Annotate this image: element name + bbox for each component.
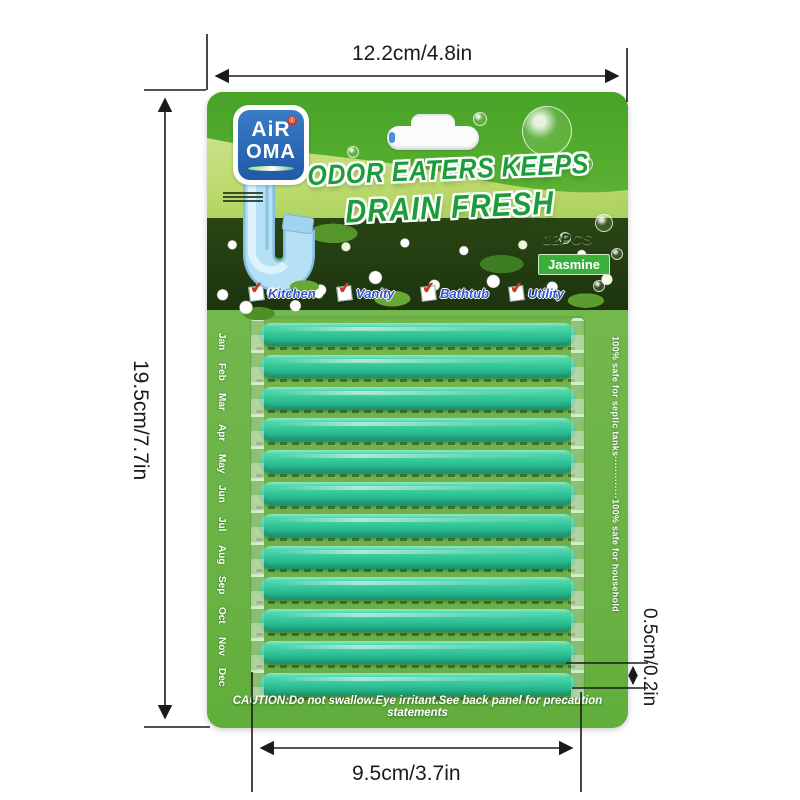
usage-option-label: Utility: [528, 286, 564, 301]
drain-stick: [260, 546, 575, 569]
brand-logo: AiR ® OMA: [233, 105, 309, 185]
usage-option-label: Vanity: [356, 286, 395, 301]
checkbox: ✔: [420, 285, 437, 302]
stick-row: [250, 413, 585, 445]
fine-print-block: [223, 192, 263, 204]
month-label: Sep: [210, 570, 227, 601]
usage-option: ✔ Vanity: [337, 286, 395, 301]
safety-note-dots: ·············: [611, 456, 621, 499]
usage-options-row: ✔ Kitchen ✔ Vanity ✔ Bathtub ✔ Utility: [207, 286, 628, 310]
month-label: Dec: [210, 662, 227, 693]
checkbox: ✔: [248, 285, 265, 302]
blister-rail-left: [251, 318, 264, 700]
checkmark-icon: ✔: [338, 280, 352, 296]
stick-row: [250, 604, 585, 636]
month-label: Jan: [210, 326, 227, 357]
safety-note-septic: 100% safe for septic tanks: [611, 336, 621, 456]
drain-stick: [260, 641, 575, 664]
registered-mark: ®: [287, 116, 297, 126]
checkbox: ✔: [336, 285, 353, 302]
drain-stick: [260, 673, 575, 696]
drain-stick: [260, 355, 575, 378]
usage-option-label: Bathtub: [440, 286, 489, 301]
product-title: ODOR EATERS KEEPS DRAIN FRESH: [301, 146, 596, 235]
checkmark-icon: ✔: [250, 280, 264, 296]
month-label: Jun: [210, 479, 227, 510]
stick-row: [250, 572, 585, 604]
drain-stick: [260, 482, 575, 505]
usage-option: ✔ Utility: [509, 286, 564, 301]
stick-row: [250, 636, 585, 668]
drain-stick: [260, 609, 575, 632]
month-label: Nov: [210, 631, 227, 662]
checkmark-icon: ✔: [510, 280, 524, 296]
product-card: AiR ® OMA ODOR EATERS KEEPS DRAIN FRESH …: [207, 92, 628, 728]
thickness-dimension-label: 0.5cm/0.2in: [638, 608, 660, 706]
inner-width-dimension-label: 9.5cm/3.7in: [352, 762, 461, 786]
hang-hole: [387, 126, 479, 150]
stick-row: [250, 541, 585, 573]
month-label: Aug: [210, 540, 227, 571]
stick-row: [250, 350, 585, 382]
usage-option: ✔ Bathtub: [421, 286, 489, 301]
checkmark-icon: ✔: [422, 280, 436, 296]
months-rail: Jan Feb Mar Apr May Jun Jul Aug Sep Oct …: [210, 326, 227, 692]
product-dimension-image: AiR ® OMA ODOR EATERS KEEPS DRAIN FRESH …: [0, 0, 800, 800]
month-label: Feb: [210, 357, 227, 388]
drain-stick: [260, 418, 575, 441]
bubble-icon: [473, 112, 487, 126]
stick-row: [250, 445, 585, 477]
blister-pack: [250, 316, 585, 702]
piece-count-label: 12PCS: [543, 231, 593, 248]
width-dimension-label: 12.2cm/4.8in: [352, 42, 472, 66]
logo-swoosh: [248, 166, 294, 171]
stick-row: [250, 382, 585, 414]
hang-hole-shadow: [389, 132, 395, 143]
brand-name-line2: OMA: [246, 141, 296, 163]
stick-rows: [250, 318, 585, 700]
hang-hole-bump: [411, 114, 455, 134]
drain-stick: [260, 387, 575, 410]
drain-stick: [260, 450, 575, 473]
blister-rail-right: [571, 318, 584, 700]
bubble-icon: [595, 214, 613, 232]
caution-text: CAUTION:Do not swallow.Eye irritant.See …: [207, 695, 628, 719]
stick-row: [250, 509, 585, 541]
month-label: May: [210, 448, 227, 479]
height-dimension-label: 19.5cm/7.7in: [128, 360, 152, 480]
safety-note-rail: 100% safe for septic tanks ·············…: [607, 336, 624, 666]
usage-option: ✔ Kitchen: [249, 286, 316, 301]
month-label: Oct: [210, 601, 227, 632]
month-label: Jul: [210, 509, 227, 540]
safety-note-household: 100% safe for household: [611, 499, 621, 612]
stick-row: [250, 477, 585, 509]
usage-option-label: Kitchen: [268, 286, 316, 301]
drain-stick: [260, 577, 575, 600]
brand-name-line1: AiR: [251, 119, 290, 141]
drain-stick: [260, 514, 575, 537]
checkbox: ✔: [508, 285, 525, 302]
month-label: Apr: [210, 418, 227, 449]
drain-stick: [260, 323, 575, 346]
brand-logo-inner: AiR ® OMA: [238, 110, 304, 180]
month-label: Mar: [210, 387, 227, 418]
scent-badge: Jasmine: [538, 254, 610, 275]
bubble-icon: [611, 248, 623, 260]
